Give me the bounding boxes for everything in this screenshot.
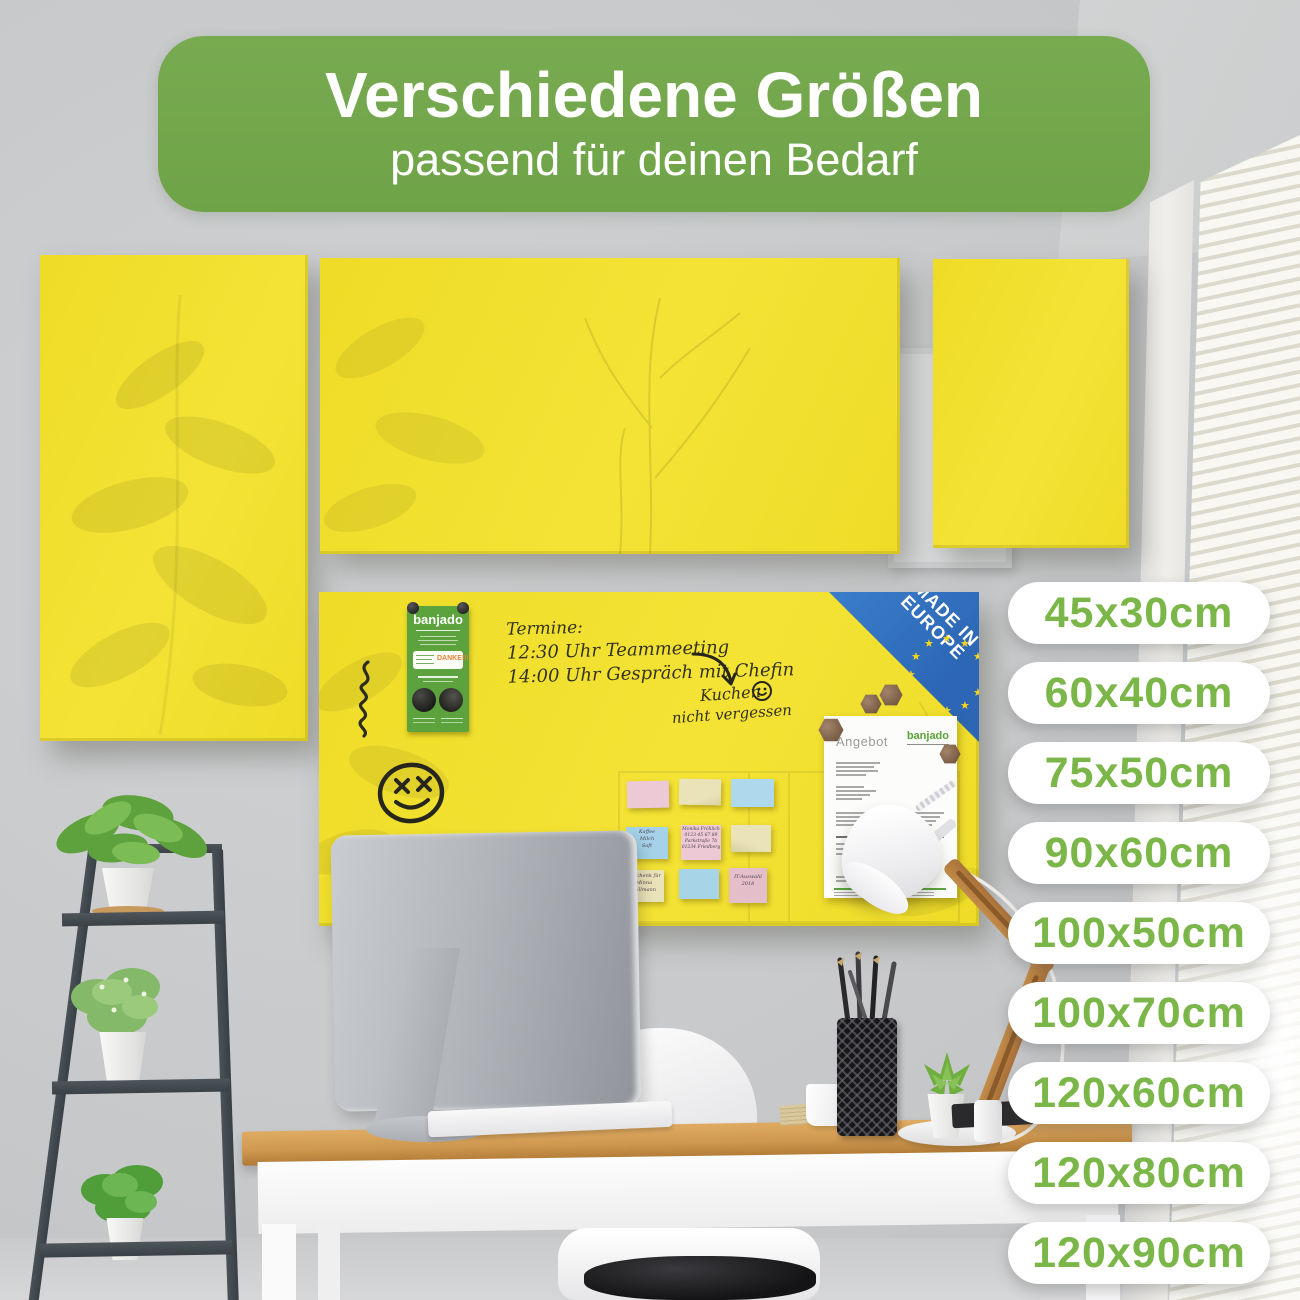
size-badge: 100x70cm [1008,982,1270,1044]
size-badge: 120x90cm [1008,1222,1270,1284]
size-badge: 120x60cm [1008,1062,1270,1124]
pencils [836,950,902,1026]
smiley-face-icon [751,680,773,702]
desk-apron [258,1150,1119,1234]
dog-photo-icon [439,688,463,712]
sticky-note [679,869,719,899]
glass-board-small-right [933,259,1129,548]
size-badge: 60x40cm [1008,662,1270,724]
flyer-danke-text: DANKE!!! [437,655,469,662]
leaf-reflection [40,255,308,741]
banjado-flyer: banjado DANKE!!! [407,606,469,732]
desk-leg [262,1224,296,1300]
eu-star-icon: ★ [942,632,952,645]
branch-reflection [320,258,900,554]
lamp-clamp-base [974,1100,1002,1142]
sticky-note-monika: Monika Fröhlich 0123 45 67 89 Parkstraße… [681,825,721,860]
imac-back [331,830,642,1111]
eu-star-icon: ★ [973,650,979,663]
sticky-note [731,779,774,807]
squiggle-doodle-icon [352,660,380,738]
headline-banner: Verschiedene Größen passend für deinen B… [158,36,1150,212]
flyer-brand: banjado [407,612,469,627]
desk-leg [318,1226,340,1300]
sticky-note [679,779,721,806]
mesh-pen-cup [837,1018,897,1136]
document-brand: banjado [907,730,949,742]
smiley-doodle-icon [374,760,448,826]
eu-star-icon: ★ [973,686,979,699]
banner-subtitle: passend für deinen Bedarf [390,134,918,186]
made-in-europe-text: MADE IN EUROPE [888,592,979,672]
glass-board-tall-left [40,255,308,741]
size-badge: 90x60cm [1008,822,1270,884]
sticky-note [731,825,771,852]
size-badge: 75x50cm [1008,742,1270,804]
size-badge: 100x50cm [1008,902,1270,964]
eu-star-icon: ★ [960,637,970,650]
eu-star-icon: ★ [924,637,934,650]
size-badge: 120x80cm [1008,1142,1270,1204]
board-handwriting-termine: Termine: 12:30 Uhr Teammeeting 14:00 Uhr… [506,612,794,687]
flyer-coupon: DANKE!!! [413,651,463,669]
banner-title: Verschiedene Größen [325,62,983,129]
sticky-note [627,781,669,809]
product-scene: banjado DANKE!!! [0,0,1300,1300]
document-title: Angebot [836,734,888,749]
glass-board-wide-top [320,258,900,554]
eu-star-icon: ★ [911,650,921,663]
eu-star-icon: ★ [960,699,970,712]
size-badge: 45x30cm [1008,582,1270,644]
dog-photo-icon [412,688,436,712]
chair-seat-cushion [584,1256,816,1300]
sticky-note-it: IT-Auswahl 2018 [729,868,767,903]
